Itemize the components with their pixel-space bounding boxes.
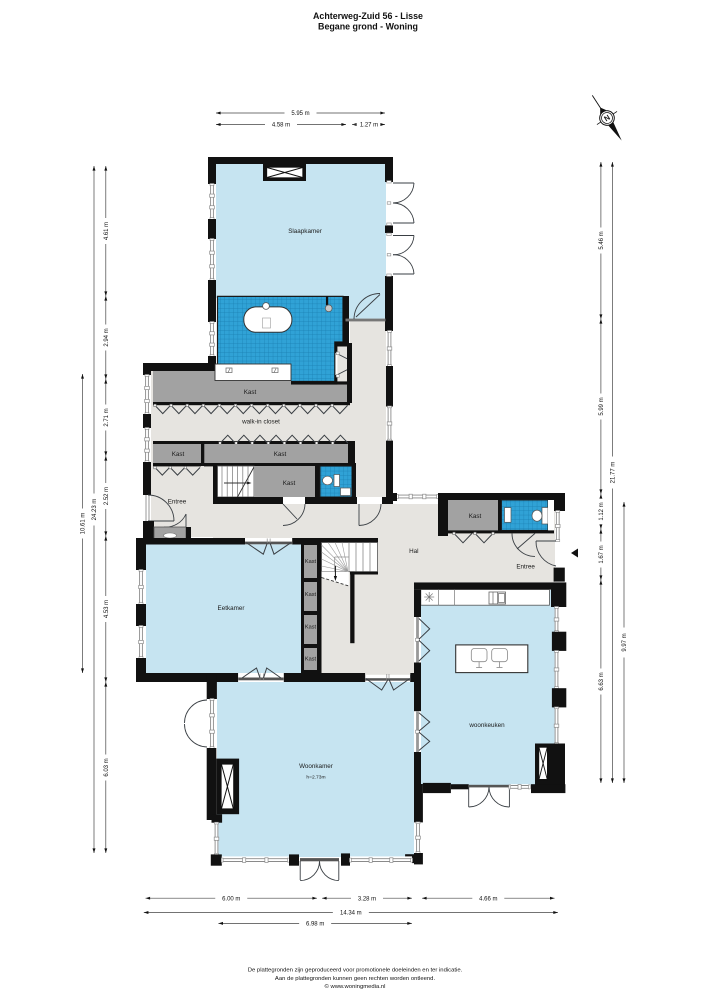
svg-text:10.61 m: 10.61 m — [81, 513, 87, 535]
svg-text:5.99 m: 5.99 m — [599, 397, 605, 415]
svg-text:1.27 m: 1.27 m — [360, 123, 378, 129]
svg-text:Kast: Kast — [244, 389, 257, 396]
svg-text:4.61 m: 4.61 m — [104, 222, 110, 240]
svg-text:Slaapkamer: Slaapkamer — [288, 228, 322, 235]
svg-text:h=2.73m: h=2.73m — [306, 775, 325, 781]
svg-text:4.58 m: 4.58 m — [272, 123, 290, 129]
svg-text:Kast: Kast — [283, 480, 296, 487]
svg-text:Kast: Kast — [305, 625, 317, 631]
svg-text:2.94 m: 2.94 m — [104, 328, 110, 346]
svg-text:5.46 m: 5.46 m — [599, 231, 605, 249]
svg-text:4.66 m: 4.66 m — [479, 896, 497, 902]
svg-text:Entree: Entree — [168, 499, 187, 506]
svg-text:Entree: Entree — [516, 564, 535, 571]
svg-text:Hal: Hal — [409, 548, 418, 555]
svg-text:walk-in closet: walk-in closet — [241, 419, 280, 426]
svg-text:14.34 m: 14.34 m — [340, 911, 362, 917]
svg-text:1.67 m: 1.67 m — [599, 545, 605, 563]
svg-text:Kast: Kast — [305, 559, 317, 565]
svg-text:1.12 m: 1.12 m — [599, 502, 605, 520]
svg-text:Eetkamer: Eetkamer — [218, 605, 245, 612]
svg-text:5.95 m: 5.95 m — [291, 111, 309, 117]
svg-text:2.71 m: 2.71 m — [104, 408, 110, 426]
svg-text:4.53 m: 4.53 m — [104, 600, 110, 618]
svg-text:© www.woningmedia.nl: © www.woningmedia.nl — [325, 983, 386, 990]
svg-text:6.00 m: 6.00 m — [222, 896, 240, 902]
svg-text:Aan de plattegronden kunnen ge: Aan de plattegronden kunnen geen rechten… — [275, 976, 436, 982]
svg-text:Begane grond - Woning: Begane grond - Woning — [318, 21, 418, 31]
svg-text:Kast: Kast — [305, 592, 317, 598]
svg-text:Kast: Kast — [172, 451, 185, 458]
svg-text:Kast: Kast — [274, 451, 287, 458]
svg-text:Woonkamer: Woonkamer — [299, 763, 333, 770]
svg-text:6.98 m: 6.98 m — [306, 922, 324, 928]
svg-text:Achterweg-Zuid 56 - Lisse: Achterweg-Zuid 56 - Lisse — [313, 11, 423, 21]
svg-text:24.23 m: 24.23 m — [92, 499, 98, 521]
svg-text:2.52 m: 2.52 m — [104, 487, 110, 505]
svg-text:6.03 m: 6.03 m — [104, 758, 110, 776]
svg-text:6.63 m: 6.63 m — [599, 672, 605, 690]
svg-text:3.28 m: 3.28 m — [358, 896, 376, 902]
svg-text:Kast: Kast — [469, 513, 482, 520]
svg-text:21.77 m: 21.77 m — [611, 462, 617, 484]
svg-text:9.97 m: 9.97 m — [622, 633, 628, 651]
svg-text:De plattegronden zijn geproduc: De plattegronden zijn geproduceerd voor … — [248, 968, 463, 974]
svg-text:woonkeuken: woonkeuken — [468, 722, 505, 729]
svg-text:Kast: Kast — [305, 657, 317, 663]
